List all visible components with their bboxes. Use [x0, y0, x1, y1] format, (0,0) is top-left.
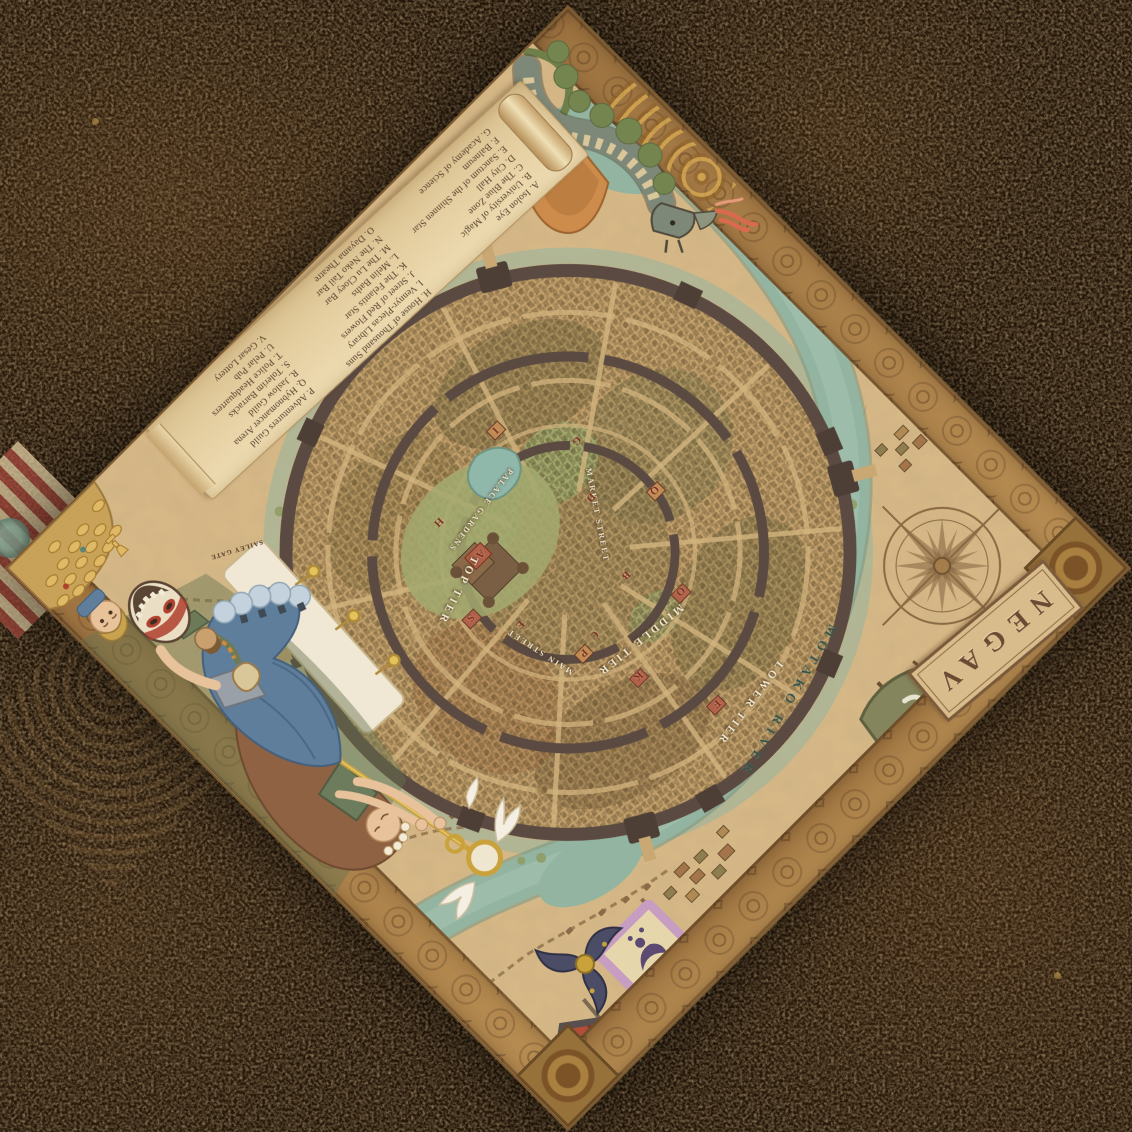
district-marker-S: S: [464, 611, 477, 624]
district-marker-O: O: [673, 584, 688, 599]
district-marker-G: G: [569, 433, 584, 448]
district-marker-K: K: [631, 669, 646, 684]
district-marker-C: C: [587, 628, 601, 642]
district-marker-D: D: [584, 490, 598, 504]
district-marker-A: A: [473, 547, 487, 561]
district-marker-B: B: [619, 568, 633, 582]
district-marker-E: E: [513, 618, 527, 632]
district-marker-H: H: [431, 515, 446, 530]
gold-glint: [92, 118, 99, 125]
district-marker-P: P: [577, 646, 590, 659]
district-marker-I: I: [489, 424, 501, 436]
district-marker-F: F: [710, 697, 723, 710]
table-background: NEGAV A. Isolon EyeB. University of Magi…: [0, 0, 1132, 1132]
gold-glint: [1054, 972, 1061, 979]
district-marker-Q: Q: [647, 483, 662, 498]
